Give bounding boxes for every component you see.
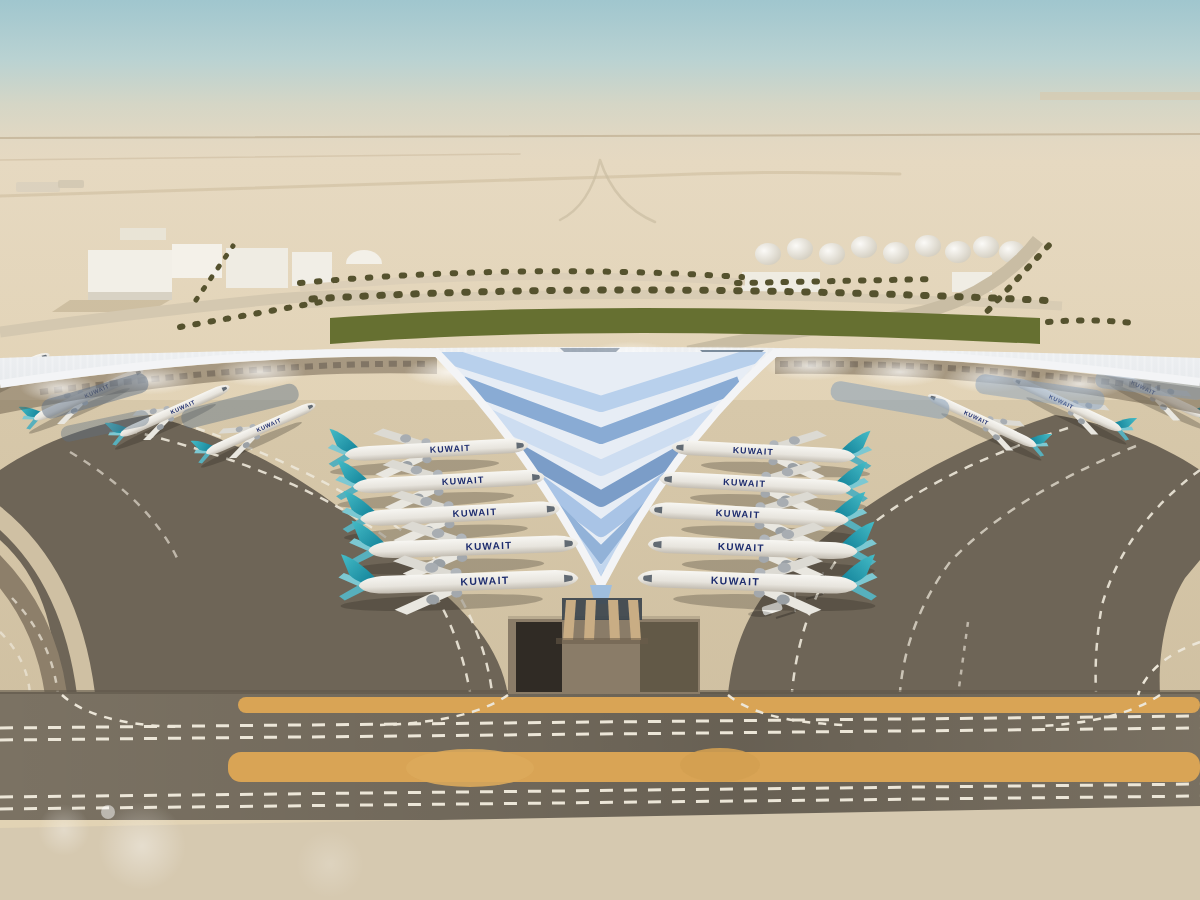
vehicle-shadow bbox=[748, 611, 772, 617]
warehouse-face bbox=[88, 292, 172, 300]
fuel-tank bbox=[973, 236, 999, 258]
lens-flare-dot bbox=[101, 805, 115, 819]
fuel-tank bbox=[787, 238, 813, 260]
shoulder-fillet bbox=[680, 748, 760, 782]
shoulder-fillet bbox=[406, 749, 534, 787]
warehouse bbox=[226, 248, 288, 288]
entrance-column bbox=[608, 600, 620, 640]
distant-structures bbox=[1040, 92, 1200, 100]
sky bbox=[0, 0, 1200, 168]
entrance-shadow bbox=[556, 638, 648, 644]
entrance-column bbox=[584, 600, 596, 640]
warehouse-annex bbox=[120, 228, 166, 240]
sunken-road-cut bbox=[516, 622, 562, 692]
fuel-tank bbox=[819, 243, 845, 265]
lens-flare bbox=[38, 804, 90, 856]
scene-canvas: KUWAIT KUWAIT bbox=[0, 0, 1200, 900]
fuel-tank bbox=[883, 242, 909, 264]
far-left-structure-2 bbox=[58, 180, 84, 188]
shoulder-strip-upper bbox=[238, 697, 1200, 713]
fuel-tank bbox=[851, 236, 877, 258]
fuel-tank bbox=[915, 235, 941, 257]
warehouse bbox=[172, 244, 222, 278]
sunken-road-shade bbox=[640, 622, 698, 692]
fuel-tank bbox=[945, 241, 971, 263]
aerial-airport-rendering: KUWAIT KUWAIT bbox=[0, 0, 1200, 900]
far-left-structure bbox=[16, 182, 60, 192]
lens-flare bbox=[296, 830, 364, 898]
fuel-tank bbox=[755, 243, 781, 265]
sunken-service-road bbox=[508, 616, 700, 694]
